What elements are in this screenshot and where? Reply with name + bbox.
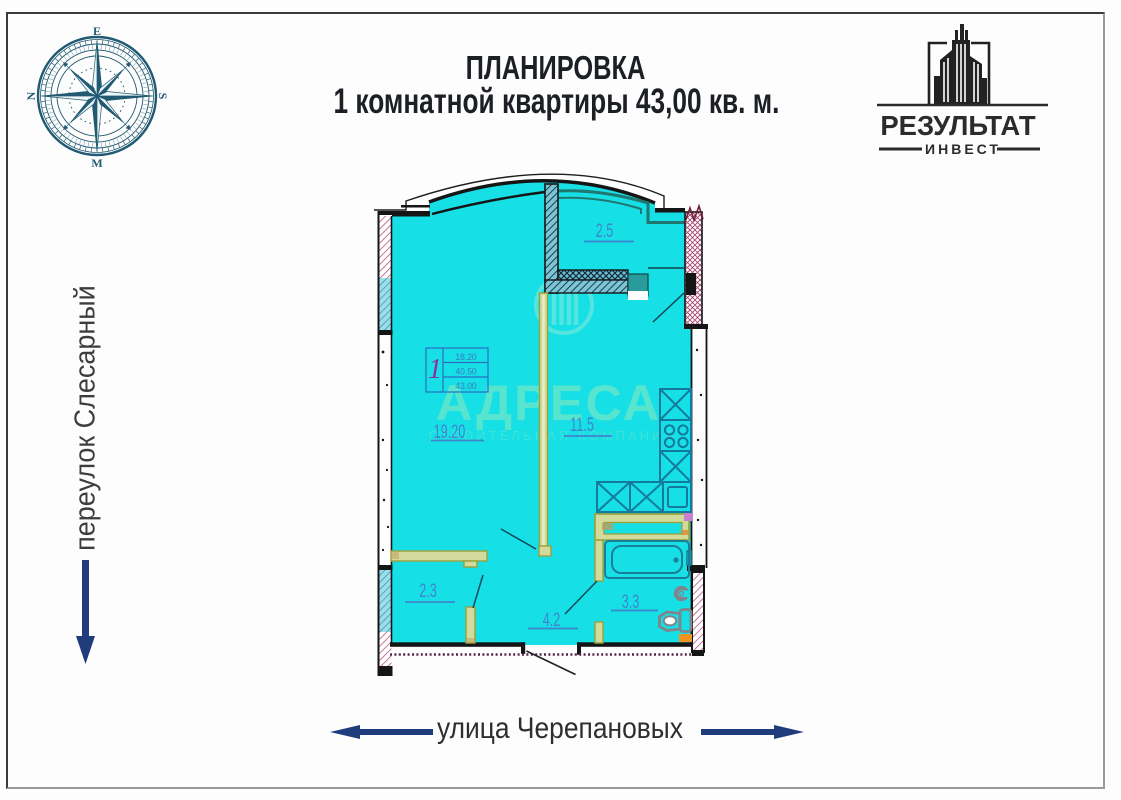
svg-text:2.3: 2.3 [419,580,437,601]
svg-text:43.00: 43.00 [455,381,476,392]
svg-text:N: N [24,91,38,100]
svg-text:1: 1 [428,354,442,385]
svg-text:S: S [156,93,170,100]
svg-text:19.20: 19.20 [434,421,466,442]
svg-text:M: M [91,156,102,170]
svg-text:E: E [93,24,101,38]
svg-text:2.5: 2.5 [596,220,614,241]
svg-text:11.5: 11.5 [570,414,594,435]
svg-text:3.3: 3.3 [622,591,640,612]
svg-text:40.50: 40.50 [455,366,476,377]
svg-text:18.20: 18.20 [455,352,476,363]
svg-text:4.2: 4.2 [543,609,561,630]
